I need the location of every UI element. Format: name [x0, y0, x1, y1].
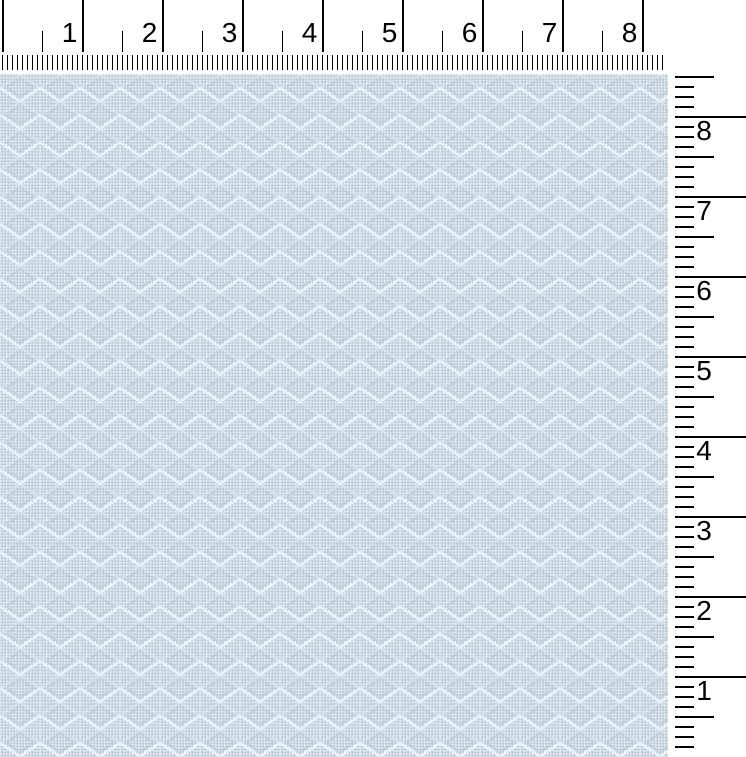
half-inch-line	[675, 636, 714, 637]
sixteenth-inch-tick	[147, 55, 148, 70]
sixteenth-inch-tick	[462, 55, 463, 70]
sixteenth-inch-tick	[642, 55, 643, 70]
eighth-inch-tick	[675, 106, 694, 107]
vertical-ruler-number: 3	[696, 517, 712, 545]
eighth-inch-tick	[675, 296, 694, 297]
sixteenth-inch-tick	[637, 55, 638, 70]
sixteenth-inch-tick	[527, 55, 528, 70]
sixteenth-inch-tick	[62, 55, 63, 70]
sixteenth-inch-tick	[422, 55, 423, 70]
sixteenth-inch-tick	[327, 55, 328, 70]
sixteenth-inch-tick	[552, 55, 553, 70]
sixteenth-inch-tick	[312, 55, 313, 70]
sixteenth-inch-tick	[557, 55, 558, 70]
sixteenth-inch-tick	[287, 55, 288, 70]
vertical-ruler-number: 5	[696, 357, 712, 385]
sixteenth-inch-tick	[182, 55, 183, 70]
sixteenth-inch-tick	[117, 55, 118, 70]
sixteenth-inch-tick	[477, 55, 478, 70]
sixteenth-inch-tick	[172, 55, 173, 70]
sixteenth-inch-tick	[32, 55, 33, 70]
sixteenth-inch-tick	[607, 55, 608, 70]
sixteenth-inch-tick	[397, 55, 398, 70]
inch-line	[675, 196, 746, 198]
fabric-texture	[0, 74, 668, 757]
eighth-inch-tick	[675, 616, 694, 617]
sixteenth-inch-tick	[482, 55, 483, 70]
inch-line	[675, 596, 746, 598]
half-inch-tick	[122, 31, 123, 52]
sixteenth-inch-tick	[342, 55, 343, 70]
horizontal-ruler-number: 8	[622, 19, 638, 47]
horizontal-ruler-number: 6	[462, 19, 478, 47]
sixteenth-inch-tick	[567, 55, 568, 70]
eighth-inch-tick	[675, 466, 694, 467]
half-inch-line	[675, 236, 714, 237]
sixteenth-inch-tick	[222, 55, 223, 70]
vertical-ruler-number: 8	[696, 117, 712, 145]
inch-tick	[562, 0, 564, 52]
sixteenth-inch-tick	[447, 55, 448, 70]
half-inch-tick	[522, 31, 523, 52]
inch-line	[675, 436, 746, 438]
sixteenth-inch-tick	[107, 55, 108, 70]
eighth-inch-tick	[675, 416, 694, 417]
sixteenth-inch-tick	[517, 55, 518, 70]
sixteenth-inch-tick	[142, 55, 143, 70]
sixteenth-inch-tick	[597, 55, 598, 70]
sixteenth-inch-tick	[317, 55, 318, 70]
sixteenth-inch-tick	[442, 55, 443, 70]
sixteenth-inch-tick	[337, 55, 338, 70]
eighth-inch-tick	[675, 566, 694, 567]
inch-tick	[482, 0, 484, 52]
sixteenth-inch-tick	[22, 55, 23, 70]
sixteenth-inch-tick	[2, 55, 3, 70]
eighth-inch-tick	[675, 86, 694, 87]
eighth-inch-tick	[675, 246, 694, 247]
sixteenth-inch-tick	[632, 55, 633, 70]
sixteenth-inch-tick	[602, 55, 603, 70]
sixteenth-inch-tick	[52, 55, 53, 70]
half-inch-tick	[362, 31, 363, 52]
inch-tick	[82, 0, 84, 52]
fabric-pattern	[0, 74, 668, 757]
inch-line	[675, 356, 746, 358]
sixteenth-inch-tick	[417, 55, 418, 70]
sixteenth-inch-tick	[72, 55, 73, 70]
sixteenth-inch-tick	[627, 55, 628, 70]
sixteenth-inch-tick	[467, 55, 468, 70]
sixteenth-inch-tick	[97, 55, 98, 70]
eighth-inch-tick	[675, 96, 694, 97]
sixteenth-inch-tick	[267, 55, 268, 70]
eighth-inch-tick	[675, 376, 694, 377]
sixteenth-inch-tick	[162, 55, 163, 70]
sixteenth-inch-tick	[392, 55, 393, 70]
vertical-ruler-number: 2	[696, 597, 712, 625]
sixteenth-inch-tick	[262, 55, 263, 70]
eighth-inch-tick	[675, 536, 694, 537]
sixteenth-inch-tick	[217, 55, 218, 70]
sixteenth-inch-tick	[77, 55, 78, 70]
eighth-inch-tick	[675, 706, 694, 707]
inch-line	[675, 516, 746, 518]
inch-tick	[642, 0, 644, 52]
horizontal-ruler-number: 3	[222, 19, 238, 47]
sixteenth-inch-tick	[362, 55, 363, 70]
sixteenth-inch-tick	[177, 55, 178, 70]
sixteenth-inch-tick	[247, 55, 248, 70]
eighth-inch-tick	[675, 256, 694, 257]
sixteenth-inch-tick	[657, 55, 658, 70]
sixteenth-inch-tick	[547, 55, 548, 70]
sixteenth-inch-tick	[307, 55, 308, 70]
sixteenth-inch-tick	[512, 55, 513, 70]
sixteenth-inch-tick	[352, 55, 353, 70]
half-inch-line	[675, 76, 714, 77]
sixteenth-inch-tick	[197, 55, 198, 70]
eighth-inch-tick	[675, 366, 694, 367]
eighth-inch-tick	[675, 136, 694, 137]
eighth-inch-tick	[675, 336, 694, 337]
half-inch-line	[675, 556, 714, 557]
sixteenth-inch-tick	[7, 55, 8, 70]
half-inch-tick	[42, 31, 43, 52]
sixteenth-inch-tick	[577, 55, 578, 70]
sixteenth-inch-tick	[617, 55, 618, 70]
sixteenth-inch-tick	[562, 55, 563, 70]
vertical-ruler-number: 6	[696, 277, 712, 305]
eighth-inch-tick	[675, 166, 694, 167]
sixteenth-inch-tick	[402, 55, 403, 70]
sixteenth-inch-tick	[472, 55, 473, 70]
half-inch-line	[675, 716, 714, 717]
eighth-inch-tick	[675, 746, 694, 747]
sixteenth-inch-tick	[372, 55, 373, 70]
sixteenth-inch-tick	[502, 55, 503, 70]
sixteenth-inch-tick	[507, 55, 508, 70]
inch-tick	[242, 0, 244, 52]
sixteenth-inch-tick	[122, 55, 123, 70]
eighth-inch-tick	[675, 546, 694, 547]
sixteenth-inch-tick	[612, 55, 613, 70]
sixteenth-inch-tick	[227, 55, 228, 70]
sixteenth-inch-tick	[302, 55, 303, 70]
half-inch-tick	[442, 31, 443, 52]
eighth-inch-tick	[675, 526, 694, 527]
inch-tick	[322, 0, 324, 52]
sixteenth-inch-tick	[452, 55, 453, 70]
sixteenth-inch-tick	[157, 55, 158, 70]
eighth-inch-tick	[675, 496, 694, 497]
sixteenth-inch-tick	[257, 55, 258, 70]
sixteenth-inch-tick	[537, 55, 538, 70]
eighth-inch-tick	[675, 486, 694, 487]
sixteenth-inch-tick	[622, 55, 623, 70]
eighth-inch-tick	[675, 736, 694, 737]
sixteenth-inch-tick	[407, 55, 408, 70]
sixteenth-inch-tick	[497, 55, 498, 70]
eighth-inch-tick	[675, 176, 694, 177]
sixteenth-inch-tick	[357, 55, 358, 70]
vertical-ruler-number: 1	[696, 677, 712, 705]
eighth-inch-tick	[675, 656, 694, 657]
eighth-inch-tick	[675, 686, 694, 687]
eighth-inch-tick	[675, 726, 694, 727]
sixteenth-inch-tick	[137, 55, 138, 70]
sixteenth-inch-tick	[347, 55, 348, 70]
sixteenth-inch-tick	[382, 55, 383, 70]
eighth-inch-tick	[675, 286, 694, 287]
inch-tick	[2, 0, 4, 52]
sixteenth-inch-tick	[582, 55, 583, 70]
sixteenth-inch-tick	[42, 55, 43, 70]
eighth-inch-tick	[675, 326, 694, 327]
eighth-inch-tick	[675, 646, 694, 647]
sixteenth-inch-tick	[167, 55, 168, 70]
sixteenth-inch-tick	[277, 55, 278, 70]
eighth-inch-tick	[675, 186, 694, 187]
eighth-inch-tick	[675, 386, 694, 387]
sixteenth-inch-tick	[367, 55, 368, 70]
sixteenth-inch-tick	[522, 55, 523, 70]
eighth-inch-tick	[675, 216, 694, 217]
half-inch-line	[675, 156, 714, 157]
sixteenth-inch-tick	[102, 55, 103, 70]
eighth-inch-tick	[675, 406, 694, 407]
eighth-inch-tick	[675, 666, 694, 667]
horizontal-ruler-number: 2	[142, 19, 158, 47]
sixteenth-inch-tick	[92, 55, 93, 70]
eighth-inch-tick	[675, 126, 694, 127]
fabric-swatch	[0, 74, 668, 757]
inch-line	[675, 116, 746, 118]
sixteenth-inch-tick	[202, 55, 203, 70]
vertical-ruler-number: 7	[696, 197, 712, 225]
sixteenth-inch-tick	[67, 55, 68, 70]
eighth-inch-tick	[675, 456, 694, 457]
eighth-inch-tick	[675, 606, 694, 607]
sixteenth-inch-tick	[322, 55, 323, 70]
eighth-inch-tick	[675, 266, 694, 267]
eighth-inch-tick	[675, 146, 694, 147]
sixteenth-inch-tick	[532, 55, 533, 70]
sixteenth-inch-tick	[332, 55, 333, 70]
half-inch-tick	[202, 31, 203, 52]
sixteenth-inch-tick	[237, 55, 238, 70]
sixteenth-inch-tick	[432, 55, 433, 70]
sixteenth-inch-tick	[282, 55, 283, 70]
eighth-inch-tick	[675, 346, 694, 347]
sixteenth-inch-tick	[587, 55, 588, 70]
sixteenth-inch-tick	[242, 55, 243, 70]
inch-line	[675, 676, 746, 678]
inch-tick	[402, 0, 404, 52]
eighth-inch-tick	[675, 226, 694, 227]
eighth-inch-tick	[675, 306, 694, 307]
eighth-inch-tick	[675, 626, 694, 627]
horizontal-ruler-number: 7	[542, 19, 558, 47]
sixteenth-inch-tick	[232, 55, 233, 70]
sixteenth-inch-tick	[47, 55, 48, 70]
sixteenth-inch-tick	[37, 55, 38, 70]
horizontal-ruler-number: 1	[62, 19, 78, 47]
sixteenth-inch-tick	[57, 55, 58, 70]
sixteenth-inch-tick	[207, 55, 208, 70]
sixteenth-inch-tick	[412, 55, 413, 70]
horizontal-ruler-number: 5	[382, 19, 398, 47]
sixteenth-inch-tick	[192, 55, 193, 70]
half-inch-line	[675, 476, 714, 477]
sixteenth-inch-tick	[457, 55, 458, 70]
sixteenth-inch-tick	[492, 55, 493, 70]
sixteenth-inch-tick	[572, 55, 573, 70]
eighth-inch-tick	[675, 426, 694, 427]
half-inch-tick	[282, 31, 283, 52]
sixteenth-inch-tick	[662, 55, 663, 70]
sixteenth-inch-tick	[387, 55, 388, 70]
half-inch-line	[675, 316, 714, 317]
sixteenth-inch-tick	[132, 55, 133, 70]
sixteenth-inch-tick	[592, 55, 593, 70]
sixteenth-inch-tick	[187, 55, 188, 70]
sixteenth-inch-tick	[212, 55, 213, 70]
sixteenth-inch-tick	[487, 55, 488, 70]
sixteenth-inch-tick	[652, 55, 653, 70]
sixteenth-inch-tick	[12, 55, 13, 70]
eighth-inch-tick	[675, 576, 694, 577]
sixteenth-inch-tick	[27, 55, 28, 70]
eighth-inch-tick	[675, 206, 694, 207]
horizontal-ruler-number: 4	[302, 19, 318, 47]
sixteenth-inch-tick	[292, 55, 293, 70]
half-inch-tick	[602, 31, 603, 52]
eighth-inch-tick	[675, 586, 694, 587]
eighth-inch-tick	[675, 506, 694, 507]
sixteenth-inch-tick	[377, 55, 378, 70]
sixteenth-inch-tick	[17, 55, 18, 70]
vertical-ruler-number: 4	[696, 437, 712, 465]
sixteenth-inch-tick	[647, 55, 648, 70]
sixteenth-inch-tick	[252, 55, 253, 70]
eighth-inch-tick	[675, 446, 694, 447]
inch-line	[675, 276, 746, 278]
sixteenth-inch-tick	[87, 55, 88, 70]
half-inch-line	[675, 396, 714, 397]
inch-tick	[162, 0, 164, 52]
sixteenth-inch-tick	[82, 55, 83, 70]
eighth-inch-tick	[675, 696, 694, 697]
sixteenth-inch-tick	[427, 55, 428, 70]
sixteenth-inch-tick	[542, 55, 543, 70]
sixteenth-inch-tick	[112, 55, 113, 70]
sixteenth-inch-tick	[152, 55, 153, 70]
sixteenth-inch-tick	[127, 55, 128, 70]
sixteenth-inch-tick	[437, 55, 438, 70]
sixteenth-inch-tick	[272, 55, 273, 70]
sixteenth-inch-tick	[297, 55, 298, 70]
